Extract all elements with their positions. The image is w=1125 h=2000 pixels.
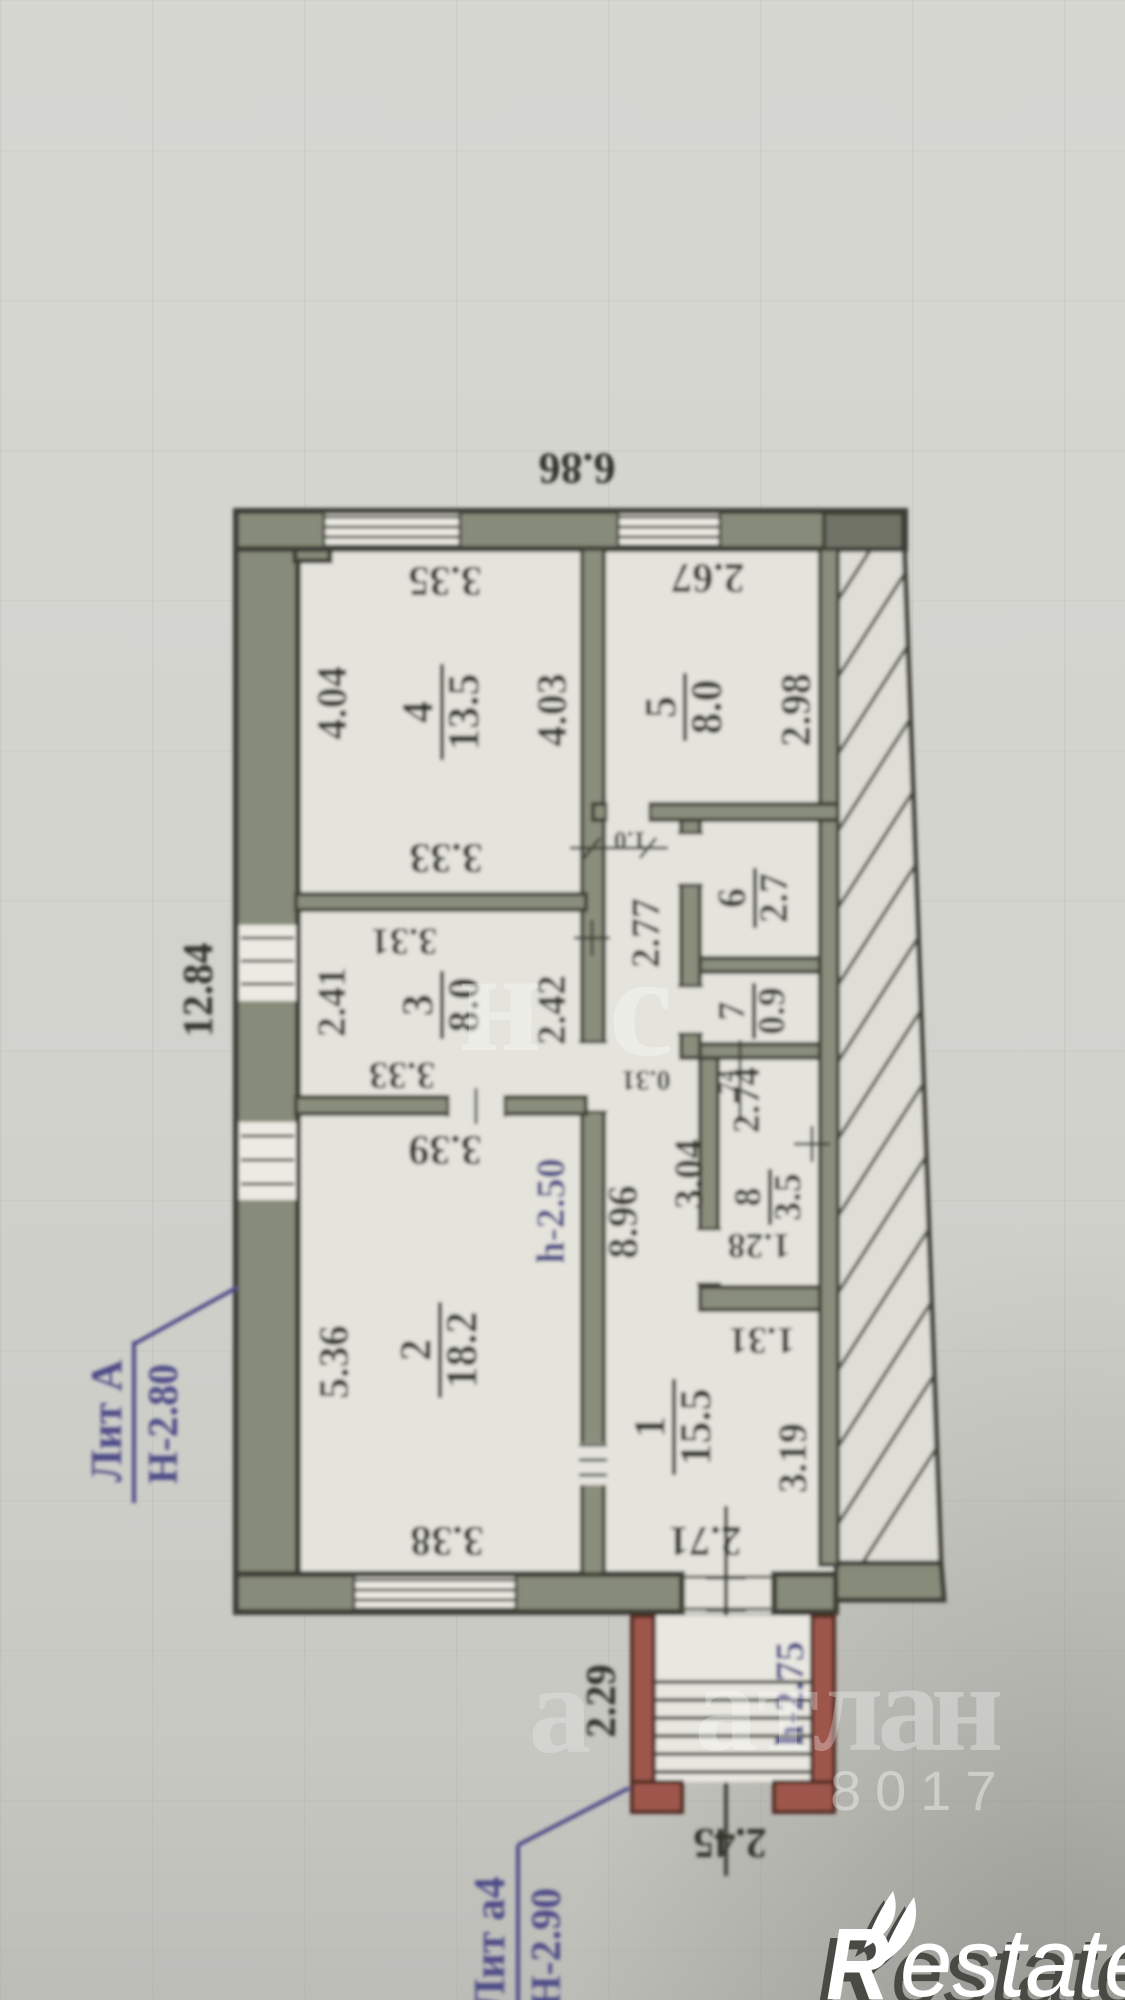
svg-text:3: 3 xyxy=(393,994,442,1016)
svg-text:Н-2.90: Н-2.90 xyxy=(524,1888,570,2000)
svg-text:3.38: 3.38 xyxy=(410,1517,484,1563)
svg-text:3.31: 3.31 xyxy=(371,920,438,962)
svg-text:а: а xyxy=(695,1639,758,1778)
svg-text:а: а xyxy=(529,1641,592,1780)
svg-text:5.36: 5.36 xyxy=(312,1325,358,1399)
svg-text:7: 7 xyxy=(711,1002,753,1021)
svg-text:0.9: 0.9 xyxy=(751,987,793,1035)
svg-text:18.2: 18.2 xyxy=(437,1312,486,1389)
svg-text:2.45: 2.45 xyxy=(693,1819,767,1865)
svg-text:8017: 8017 xyxy=(830,1759,1011,1822)
svg-text:2.41: 2.41 xyxy=(309,967,354,1037)
svg-text:4.04: 4.04 xyxy=(310,666,356,740)
svg-text:3.39: 3.39 xyxy=(408,1126,482,1172)
svg-text:74: 74 xyxy=(715,1070,741,1094)
svg-text:1: 1 xyxy=(625,1416,674,1438)
svg-text:н: н xyxy=(931,1639,1004,1778)
svg-text:6: 6 xyxy=(709,888,754,908)
svg-text:3.19: 3.19 xyxy=(770,1423,815,1493)
svg-text:1.31: 1.31 xyxy=(729,1319,796,1361)
svg-text:с: с xyxy=(609,927,673,1087)
svg-text:8.96: 8.96 xyxy=(601,1185,647,1259)
svg-text:3.33: 3.33 xyxy=(369,1054,436,1096)
svg-text:л: л xyxy=(813,1639,884,1778)
svg-text:Н-2.80: Н-2.80 xyxy=(141,1364,187,1484)
svg-text:15.5: 15.5 xyxy=(671,1389,720,1466)
svg-text:6.86: 6.86 xyxy=(539,444,616,493)
svg-text:12.84: 12.84 xyxy=(176,943,222,1038)
svg-text:4.03: 4.03 xyxy=(530,673,576,747)
svg-text:13.5: 13.5 xyxy=(439,674,488,751)
svg-text:Лит а4: Лит а4 xyxy=(465,1877,514,2000)
svg-text:2: 2 xyxy=(391,1339,440,1361)
svg-text:Лит А: Лит А xyxy=(82,1360,131,1483)
svg-text:3.35: 3.35 xyxy=(408,557,482,603)
svg-text:3.33: 3.33 xyxy=(409,834,483,880)
svg-text:estate: estate xyxy=(900,1910,1125,2000)
svg-text:3.5: 3.5 xyxy=(767,1173,809,1221)
svg-text:5: 5 xyxy=(636,696,685,718)
svg-text:т: т xyxy=(757,1639,819,1778)
svg-text:2.71: 2.71 xyxy=(668,1517,742,1563)
svg-text:2.7: 2.7 xyxy=(751,873,796,923)
svg-text:1.28: 1.28 xyxy=(728,1226,791,1266)
svg-text:2.98: 2.98 xyxy=(774,673,820,747)
svg-text:1.0: 1.0 xyxy=(614,826,647,855)
svg-text:н: н xyxy=(458,922,542,1082)
svg-text:h-2.50: h-2.50 xyxy=(528,1158,573,1264)
svg-text:2.67: 2.67 xyxy=(671,554,745,600)
svg-text:4: 4 xyxy=(393,701,442,723)
svg-text:3.04: 3.04 xyxy=(666,1139,711,1209)
svg-text:8.0: 8.0 xyxy=(682,680,731,735)
svg-text:8: 8 xyxy=(727,1188,769,1207)
